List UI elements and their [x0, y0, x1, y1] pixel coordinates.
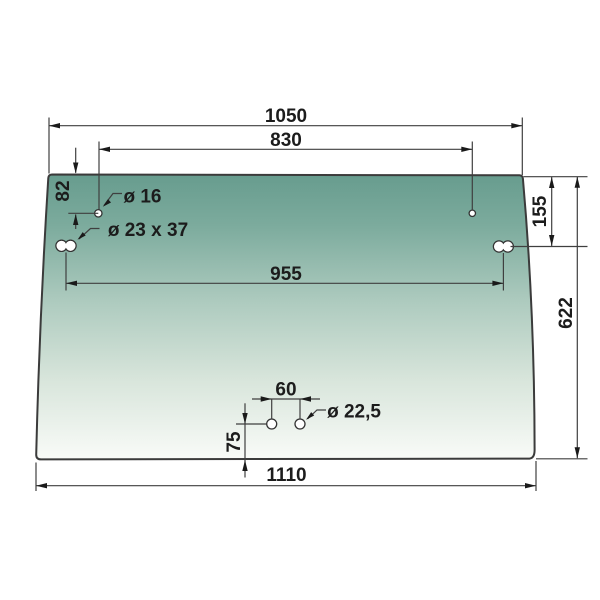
- label-text-o16: ø 16: [123, 187, 161, 208]
- dim-label-82: 82: [53, 180, 74, 201]
- dim-label-1050: 1050: [265, 106, 307, 127]
- dim-label-1110: 1110: [266, 465, 306, 486]
- drawing-canvas: 1050 830 82 ø 16 ø 23 x 37 955: [0, 0, 600, 600]
- dim-label-155: 155: [530, 195, 551, 227]
- dim-label-955: 955: [270, 264, 302, 285]
- dim-label-60: 60: [275, 380, 296, 401]
- left-slot-hole: [56, 240, 76, 251]
- upper-right-hole: [469, 210, 475, 216]
- dim-label-75: 75: [224, 431, 245, 453]
- dim-1110: 1110: [36, 461, 536, 491]
- glass-panel: [36, 175, 534, 460]
- glass-panel-outline: [36, 175, 534, 460]
- lower-left-hole: [267, 419, 277, 429]
- technical-drawing-page: 1050 830 82 ø 16 ø 23 x 37 955: [0, 0, 600, 600]
- right-slot-hole: [493, 241, 513, 252]
- lower-right-hole: [295, 419, 305, 429]
- dim-label-830: 830: [270, 130, 302, 151]
- label-text-o23x37: ø 23 x 37: [108, 220, 188, 241]
- label-text-o22-5: ø 22,5: [327, 402, 381, 423]
- dim-label-622: 622: [556, 297, 577, 329]
